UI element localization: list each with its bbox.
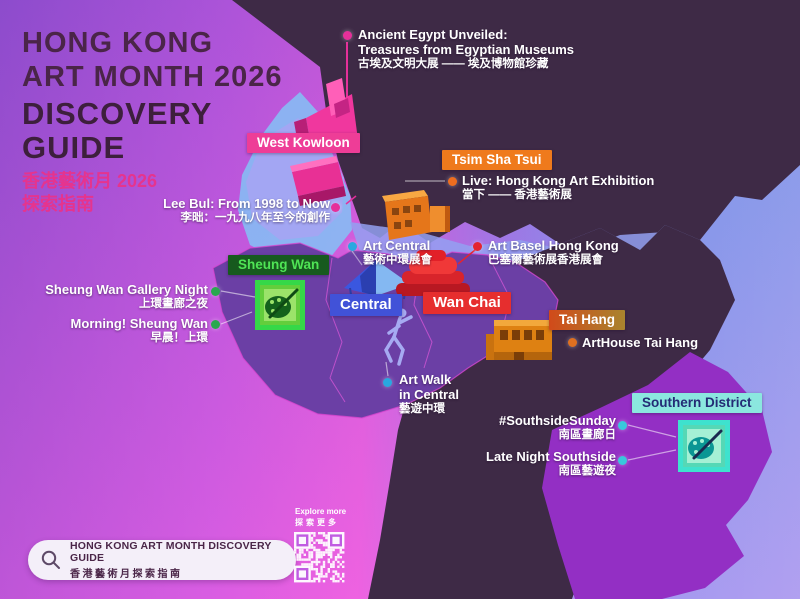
event-art-basel: Art Basel Hong Kong 巴塞爾藝術展香港展會 <box>488 238 619 268</box>
district-badge-sheung-wan[interactable]: Sheung Wan <box>228 255 329 275</box>
event-dot-ancient-egypt <box>343 31 352 40</box>
district-badge-tai-hang[interactable]: Tai Hang <box>549 310 625 330</box>
event-dot-morning-sheung-wan <box>211 320 220 329</box>
event-dot-lee-bul <box>331 203 340 212</box>
qr-code[interactable] <box>294 532 346 584</box>
district-badge-southern-district[interactable]: Southern District <box>632 393 762 413</box>
title-line1: HONG KONG <box>22 26 213 60</box>
event-dot-arthouse-tai-hang <box>568 338 577 347</box>
search-text-en: HONG KONG ART MONTH DISCOVERY GUIDE <box>70 540 296 564</box>
event-ancient-egypt: Ancient Egypt Unveiled: Treasures from E… <box>358 27 574 72</box>
search-icon <box>40 549 62 571</box>
event-dot-art-walk <box>383 378 392 387</box>
title-discovery: DISCOVERY <box>22 97 212 131</box>
event-southside-sunday: #SouthsideSunday 南區畫廊日 <box>499 413 616 443</box>
tai-hang-building-icon <box>486 320 552 360</box>
event-dot-art-central <box>348 242 357 251</box>
district-badge-tsim-sha-tsui[interactable]: Tsim Sha Tsui <box>442 150 552 170</box>
title-line2: ART MONTH 2026 <box>22 60 283 94</box>
search-bar[interactable]: HONG KONG ART MONTH DISCOVERY GUIDE 香港藝術… <box>28 540 296 580</box>
event-art-central: Art Central 藝術中環展會 <box>363 238 432 268</box>
palette-icon-teal <box>678 420 730 472</box>
event-late-night-southside: Late Night Southside 南區藝遊夜 <box>486 449 616 479</box>
event-dot-sheung-wan-gallery-night <box>211 287 220 296</box>
event-lee-bul: Lee Bul: From 1998 to Now 李昢：一九九八年至今的創作 <box>163 196 330 226</box>
explore-more-label: Explore more 探索更多 <box>295 507 346 527</box>
title-guide: GUIDE <box>22 131 125 165</box>
event-art-walk: Art Walk in Central 藝遊中環 <box>399 372 459 417</box>
district-badge-west-kowloon[interactable]: West Kowloon <box>247 133 360 153</box>
event-dot-live-hk-art <box>448 177 457 186</box>
district-badge-wan-chai[interactable]: Wan Chai <box>423 292 511 314</box>
search-text-zh: 香港藝術月探索指南 <box>70 565 296 580</box>
palette-icon-green <box>255 280 305 330</box>
event-morning-sheung-wan: Morning! Sheung Wan 早晨！上環 <box>71 316 208 346</box>
event-dot-art-basel <box>473 242 482 251</box>
event-dot-late-night-southside <box>618 456 627 465</box>
title-zh-line2: 探索指南 <box>22 190 94 216</box>
district-badge-central[interactable]: Central <box>330 294 402 316</box>
event-sheung-wan-gallery-night: Sheung Wan Gallery Night 上環畫廊之夜 <box>45 282 208 312</box>
poster: HONG KONG ART MONTH 2026 DISCOVERY GUIDE… <box>0 0 800 599</box>
event-live-hk-art: Live: Hong Kong Art Exhibition 當下 —— 香港藝… <box>462 173 654 203</box>
event-arthouse-tai-hang: ArtHouse Tai Hang <box>582 335 698 350</box>
event-dot-southside-sunday <box>618 421 627 430</box>
